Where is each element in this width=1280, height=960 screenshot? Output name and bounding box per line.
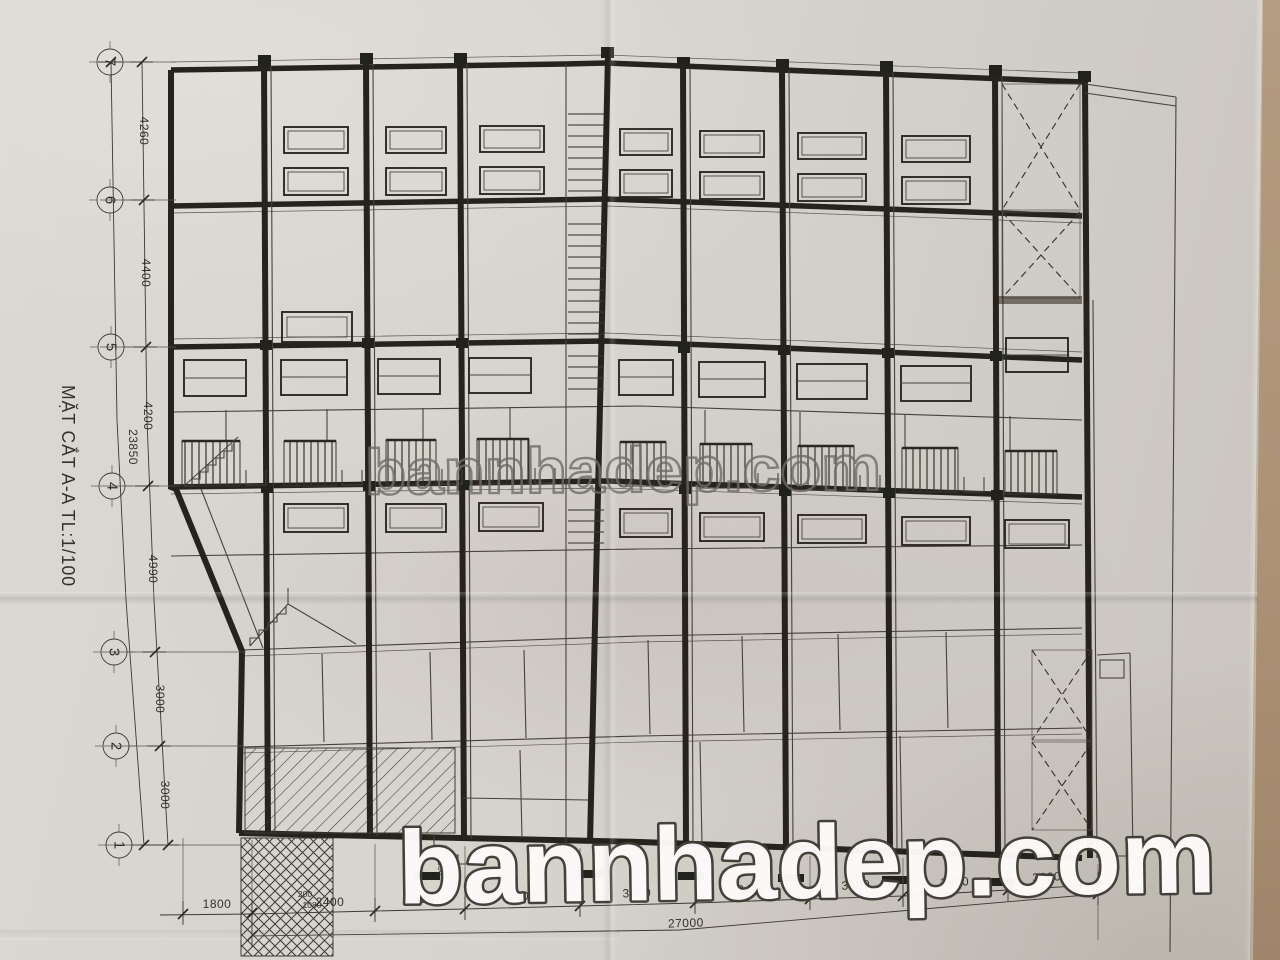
- grid-bubble-label: 3: [106, 648, 123, 656]
- x-brace-top-right: [996, 84, 1082, 304]
- grid-bubble-label: 2: [108, 742, 125, 750]
- dim-label: 4990: [146, 555, 160, 584]
- drawing-title: MẶT CẮT A-A TL:1/100: [58, 385, 79, 587]
- photo-of-architectural-section-drawing: 7 6 5 4 3 2 1 4260 4400 4200 4990 3000 3…: [0, 0, 1280, 960]
- dim-minor-label: 200: [298, 889, 312, 899]
- dim-overall-label: 23850: [126, 429, 140, 465]
- grid-bubble-label: 4: [104, 482, 121, 490]
- fold-crease-vertical: [602, 0, 618, 960]
- dim-label: 4260: [137, 117, 151, 146]
- watermark-bottom: bannhadep.com: [397, 799, 1217, 926]
- dim-label: 4400: [139, 259, 153, 288]
- dim-label: 3000: [158, 781, 172, 810]
- dim-minor-label: 1080: [303, 900, 322, 910]
- dim-label: 3000: [153, 685, 167, 714]
- grid-bubble-label: 1: [111, 841, 128, 849]
- watermark-center: bannhadep.com: [365, 432, 882, 509]
- lower-slot-windows: [284, 503, 1069, 548]
- fold-crease-bottom: [0, 930, 620, 940]
- grid-bubble-label: 7: [102, 58, 119, 66]
- grid-bubble-label: 6: [102, 196, 119, 204]
- top-slot-windows: [284, 126, 970, 204]
- dim-label: 4200: [141, 402, 155, 431]
- grid-bubble-label: 5: [103, 343, 120, 351]
- section-drawing-svg: 7 6 5 4 3 2 1 4260 4400 4200 4990 3000 3…: [0, 0, 1280, 960]
- fold-crease-horizontal: [0, 592, 1258, 604]
- dim-label: 1800: [203, 897, 232, 911]
